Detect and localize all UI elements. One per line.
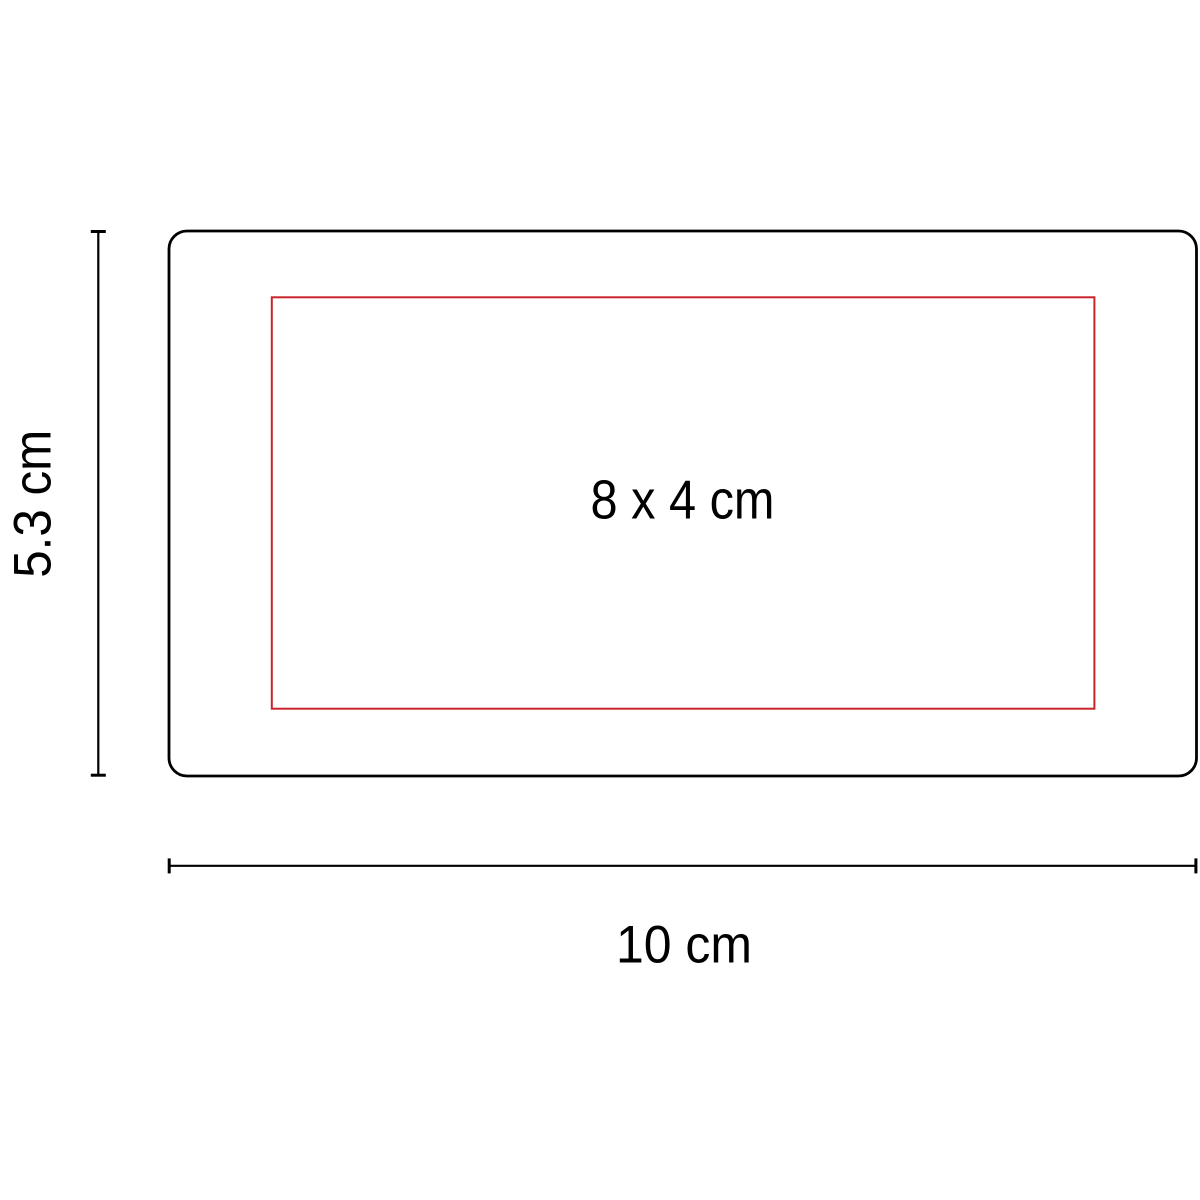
svg-text:8 x 4 cm: 8 x 4 cm xyxy=(591,470,775,531)
svg-text:5.3 cm: 5.3 cm xyxy=(4,430,63,578)
svg-text:10 cm: 10 cm xyxy=(616,916,752,975)
